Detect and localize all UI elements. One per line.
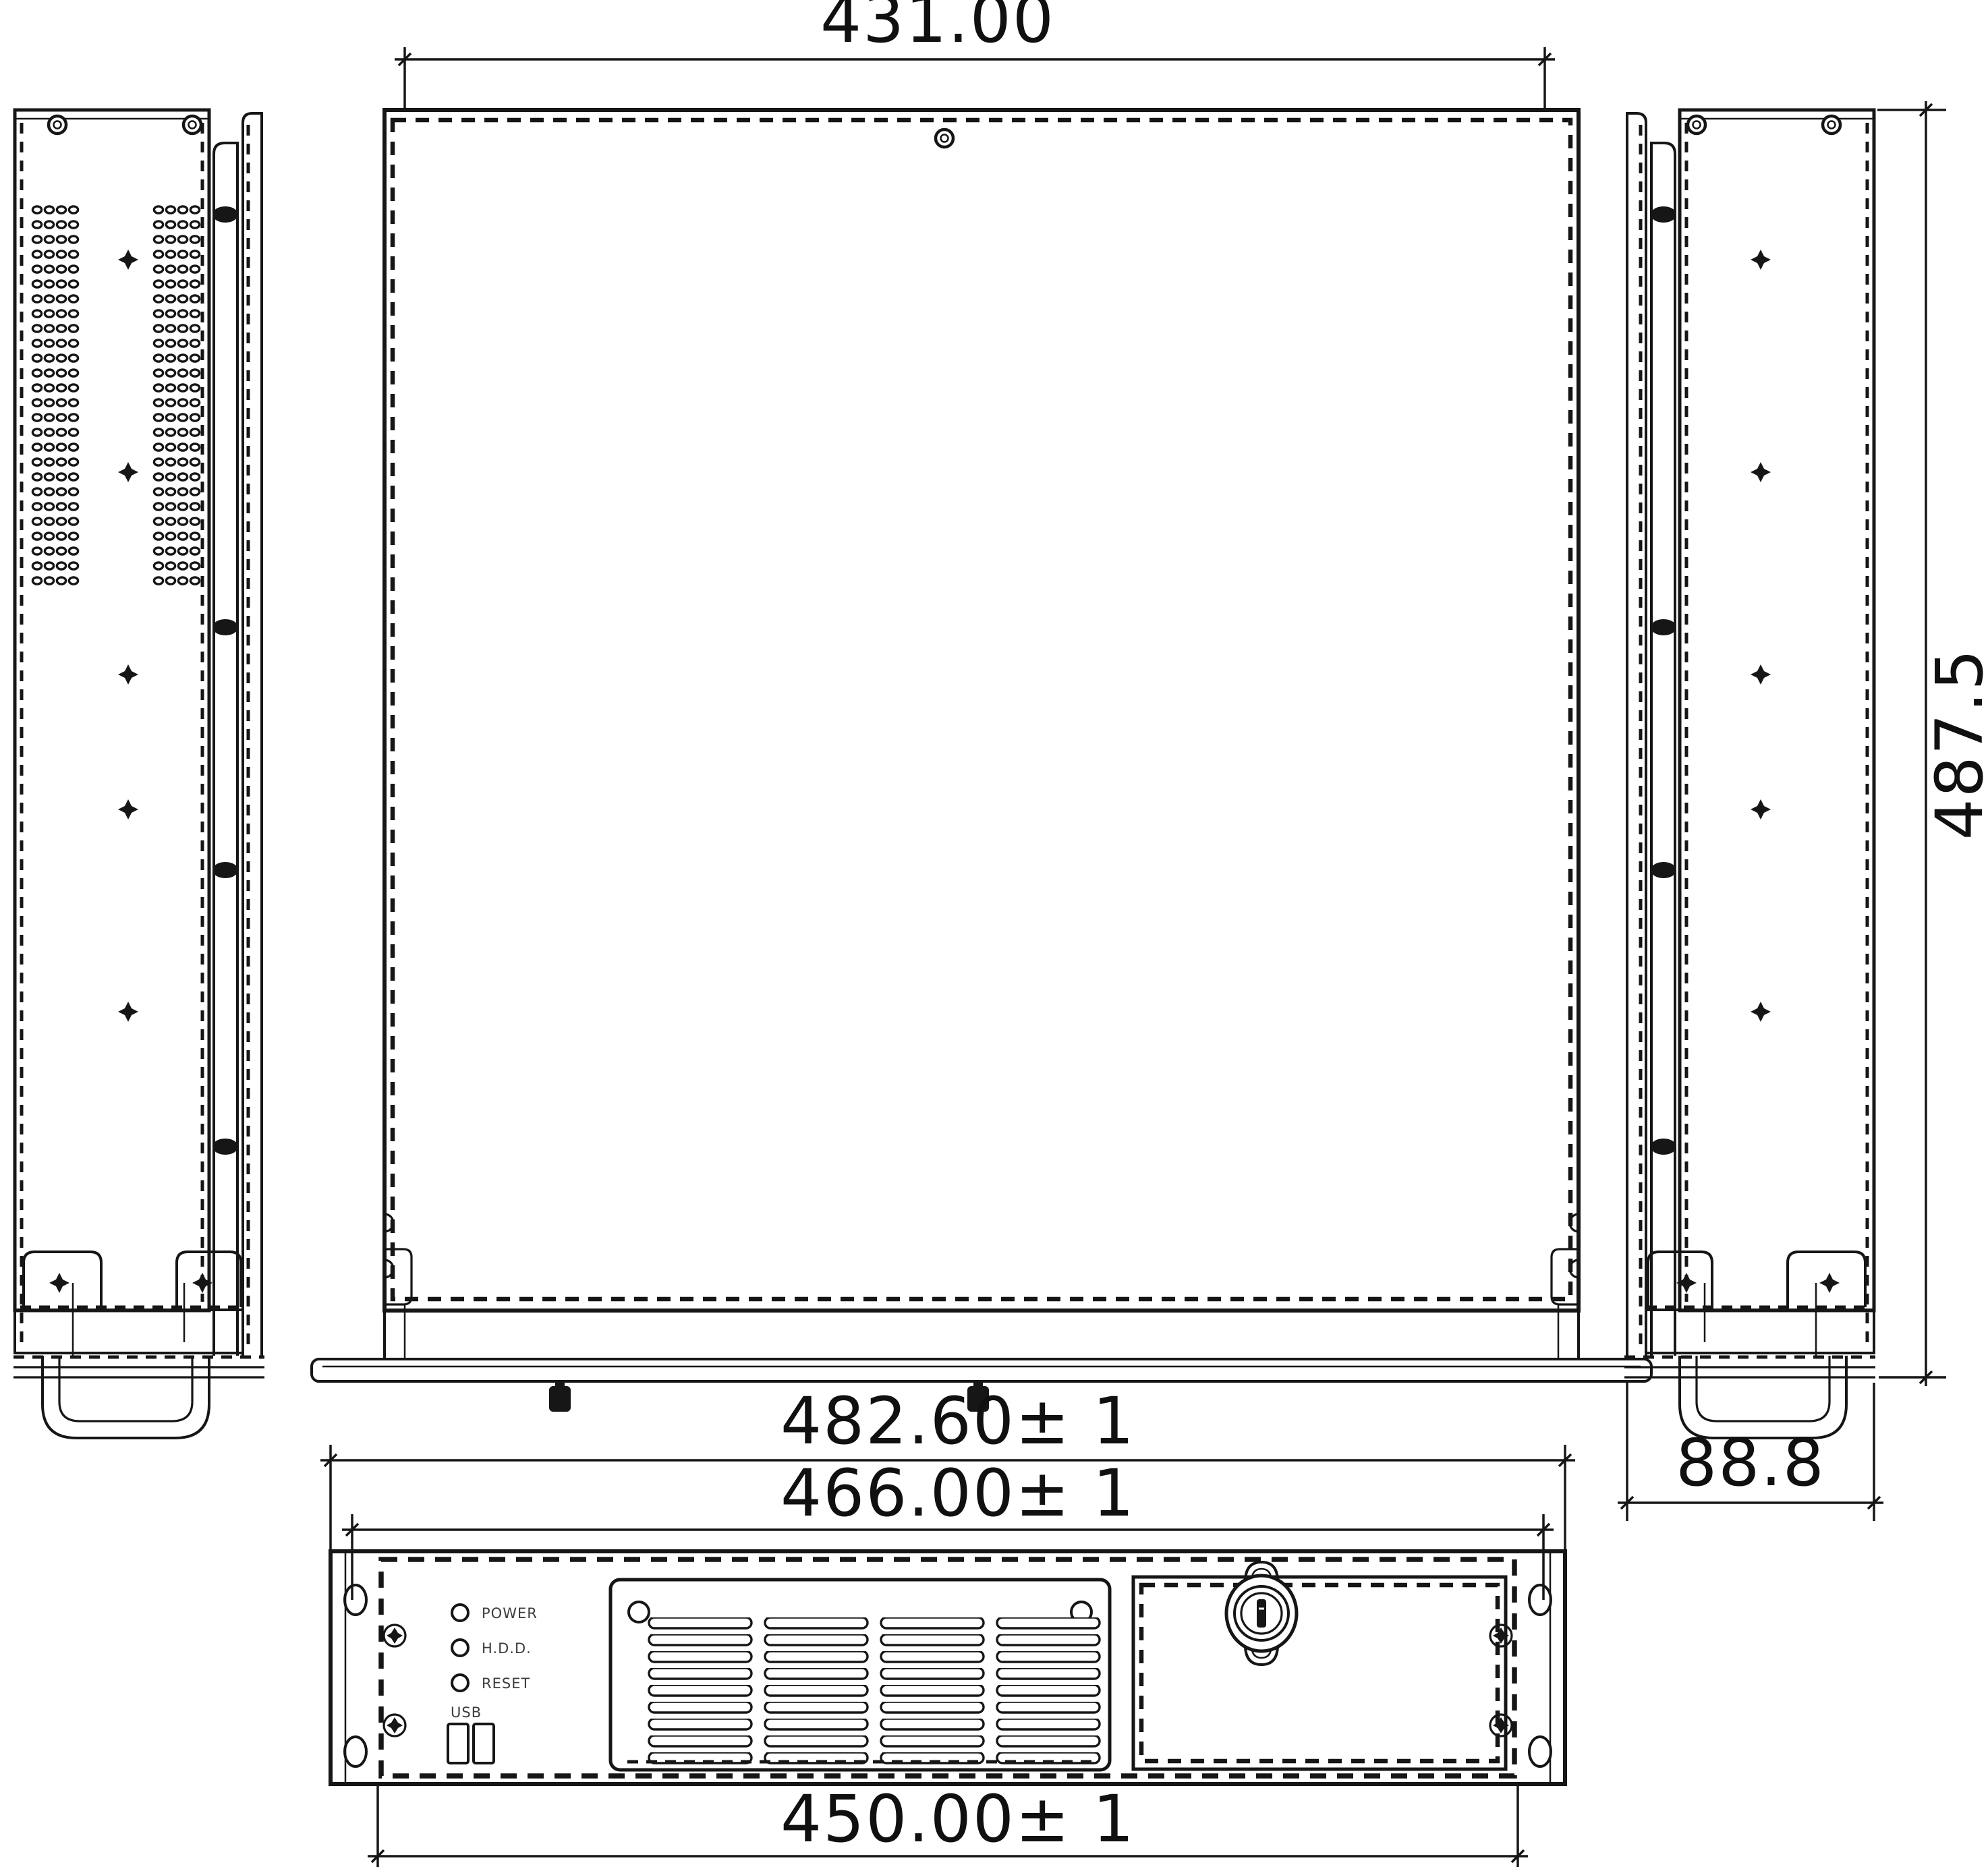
dimension-450-00: 450.00± 1 bbox=[368, 1781, 1528, 1867]
panel-screw-icon bbox=[384, 1625, 405, 1646]
drive-bay-door-dashed bbox=[1141, 1585, 1498, 1761]
chassis-dimension-drawing: POWER H.D.D. RESET USB bbox=[0, 0, 1988, 1869]
rail-screw-icon bbox=[212, 619, 238, 635]
hdd-led-label: H.D.D. bbox=[482, 1640, 532, 1657]
screw-icon bbox=[118, 664, 138, 685]
left-side-vent-hole-grid bbox=[152, 202, 201, 588]
handle-inner-line bbox=[59, 1356, 192, 1421]
dimension-text-front-mount-width: 466.00± 1 bbox=[780, 1456, 1135, 1531]
panel-screw-icon bbox=[1490, 1715, 1512, 1736]
dimension-text-top-width: 431.00 bbox=[820, 0, 1055, 57]
reset-label: RESET bbox=[482, 1675, 530, 1692]
screw-icon bbox=[1751, 799, 1771, 820]
top-view-dashed-border bbox=[393, 120, 1570, 1299]
panel-screw-icon bbox=[1490, 1625, 1512, 1646]
dimension-text-front-flange-width: 482.60± 1 bbox=[780, 1383, 1135, 1459]
vent-slot-grid bbox=[645, 1617, 1105, 1767]
screw-icon bbox=[118, 250, 138, 270]
screw-icon bbox=[1819, 1273, 1840, 1293]
hdd-led-icon bbox=[452, 1640, 468, 1656]
rail-screw-icon bbox=[1651, 862, 1676, 878]
dimension-text-side-height: 487.5 bbox=[1922, 648, 1988, 840]
right-side-front-plate bbox=[1646, 1310, 1874, 1353]
screw-icon bbox=[1751, 664, 1771, 685]
screw-icon bbox=[1751, 1002, 1771, 1022]
dimension-text-side-depth: 88.8 bbox=[1676, 1425, 1825, 1501]
right-side-top-hole bbox=[1823, 116, 1840, 134]
right-side-rail bbox=[1651, 143, 1675, 1356]
left-side-view bbox=[13, 110, 264, 1438]
screw-icon bbox=[118, 1002, 138, 1022]
ear-mount-slot bbox=[1529, 1585, 1551, 1615]
screw-icon bbox=[1751, 250, 1771, 270]
screw-icon bbox=[49, 1273, 69, 1293]
panel-screw-icon bbox=[384, 1715, 405, 1736]
usb-port[interactable] bbox=[448, 1724, 468, 1763]
usb-label: USB bbox=[451, 1704, 482, 1721]
power-led-icon bbox=[452, 1605, 468, 1621]
rail-screw-icon bbox=[212, 862, 238, 878]
dimension-88-8: 88.8 bbox=[1618, 1383, 1883, 1521]
ear-mount-slot bbox=[1529, 1737, 1551, 1766]
top-view bbox=[312, 110, 1651, 1412]
dimension-text-front-body-width: 450.00± 1 bbox=[780, 1781, 1135, 1857]
top-view-outline bbox=[385, 110, 1579, 1311]
right-side-top-hole bbox=[1688, 116, 1705, 134]
top-view-cover-hole bbox=[936, 130, 953, 147]
left-side-top-hole bbox=[183, 116, 201, 134]
right-side-panel-outline bbox=[1680, 110, 1874, 1311]
rail-screw-icon bbox=[1651, 619, 1676, 635]
dimension-487-5: 487.5 bbox=[1877, 101, 1988, 1386]
dimension-431: 431.00 bbox=[395, 0, 1555, 108]
front-view: POWER H.D.D. RESET USB bbox=[331, 1551, 1565, 1784]
screw-icon bbox=[118, 462, 138, 482]
drive-bay-door[interactable] bbox=[1133, 1577, 1506, 1769]
rail-screw-icon bbox=[1651, 206, 1676, 223]
screw-icon bbox=[1751, 462, 1771, 482]
rail-screw-icon bbox=[212, 1139, 238, 1155]
front-flange-plate bbox=[312, 1359, 1651, 1381]
key-slot bbox=[1257, 1599, 1266, 1628]
right-side-view bbox=[1624, 110, 1875, 1438]
ear-mount-slot bbox=[345, 1737, 366, 1766]
reset-button-icon[interactable] bbox=[452, 1675, 468, 1691]
engineering-drawing-page: POWER H.D.D. RESET USB bbox=[0, 0, 1988, 1869]
foot-icon bbox=[549, 1386, 571, 1412]
left-side-vent-hole-grid bbox=[31, 202, 80, 588]
left-side-front-plate bbox=[15, 1310, 243, 1353]
rail-screw-icon bbox=[212, 206, 238, 223]
left-side-top-hole bbox=[49, 116, 66, 134]
handle-inner-line bbox=[1697, 1356, 1829, 1421]
rail-screw-icon bbox=[1651, 1139, 1676, 1155]
right-side-flange bbox=[1627, 113, 1646, 1356]
ear-mount-slot bbox=[345, 1585, 366, 1615]
usb-port[interactable] bbox=[474, 1724, 494, 1763]
left-side-flange bbox=[243, 113, 262, 1356]
screw-icon bbox=[118, 799, 138, 820]
power-led-label: POWER bbox=[482, 1605, 538, 1621]
left-side-rail bbox=[214, 143, 237, 1356]
